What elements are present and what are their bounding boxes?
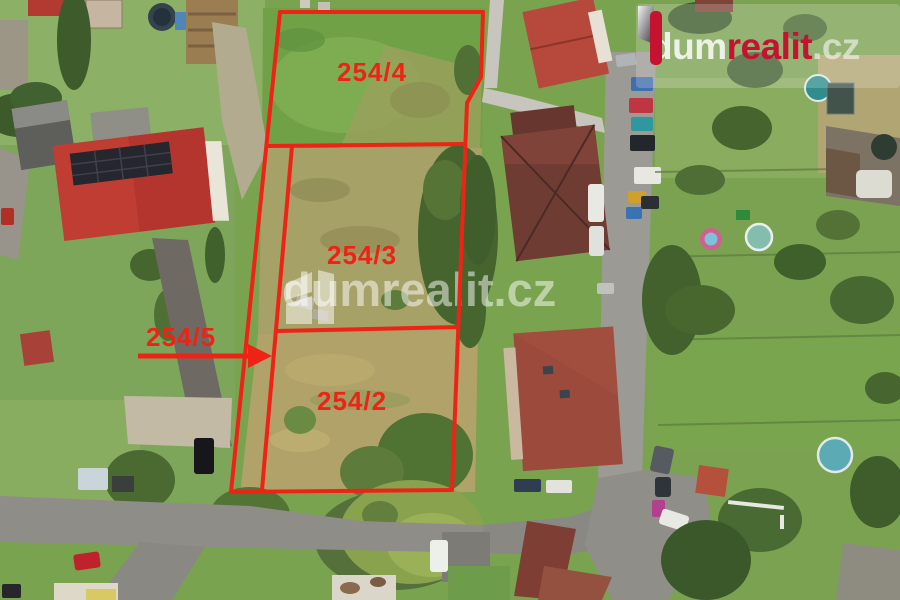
logo-wordmark: dumrealit.cz: [650, 28, 860, 65]
divider-254-4: [265, 144, 464, 146]
logo-cz: .cz: [812, 26, 860, 67]
parcel-label-254-4: 254/4: [337, 57, 407, 87]
parcel-boundary-overlay: 254/4 254/3 254/2 254/5: [0, 0, 900, 600]
divider-254-3: [277, 327, 459, 331]
brand-logo: dumrealit.cz: [636, 4, 900, 88]
aerial-listing-photo: dumrealit.cz 254/4 254/3 254/2 254/5: [0, 0, 900, 600]
arrow-head: [248, 344, 272, 368]
access-strip-line: [262, 146, 292, 490]
parcel-label-254-3: 254/3: [327, 240, 397, 270]
logo-realit: realit: [727, 26, 812, 67]
parcel-lines: [138, 12, 483, 492]
parcel-label-254-2: 254/2: [317, 386, 387, 416]
parcel-label-254-5: 254/5: [146, 322, 216, 352]
brand-logo-icon: [636, 4, 664, 66]
